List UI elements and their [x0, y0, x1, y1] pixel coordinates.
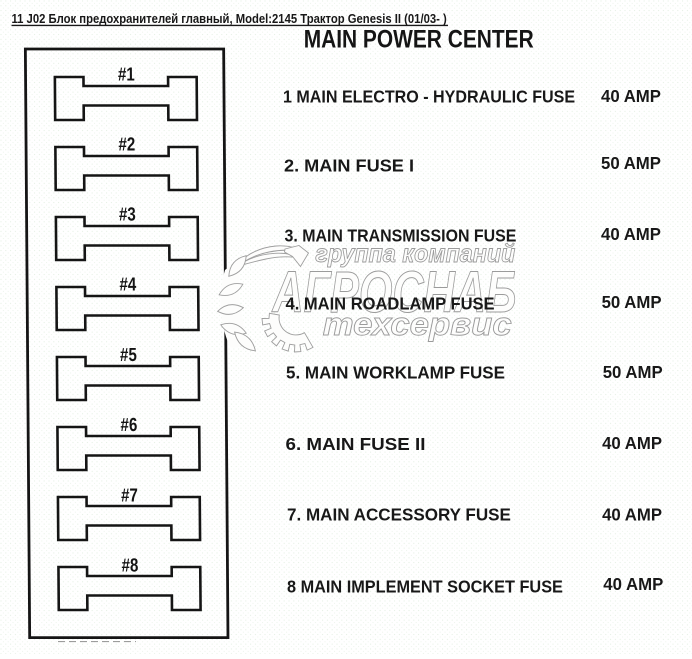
svg-text:#2: #2: [118, 133, 135, 155]
svg-text:40 AMP: 40 AMP: [603, 575, 663, 594]
svg-text:4. MAIN ROADLAMP FUSE: 4. MAIN ROADLAMP FUSE: [286, 294, 495, 313]
svg-text:40 AMP: 40 AMP: [601, 225, 661, 244]
svg-text:6. MAIN FUSE II: 6. MAIN FUSE II: [286, 435, 426, 454]
svg-text:40 AMP: 40 AMP: [602, 434, 662, 453]
svg-text:40 AMP: 40 AMP: [602, 505, 662, 524]
svg-text:2. MAIN FUSE I: 2. MAIN FUSE I: [284, 156, 414, 176]
svg-text:8 MAIN IMPLEMENT SOCKET FUSE: 8 MAIN IMPLEMENT SOCKET FUSE: [287, 577, 563, 597]
svg-text:#5: #5: [120, 343, 137, 365]
svg-text:#4: #4: [119, 273, 136, 295]
svg-text:50 AMP: 50 AMP: [603, 363, 663, 382]
svg-text:#3: #3: [119, 203, 136, 225]
svg-text:MAIN POWER CENTER: MAIN POWER CENTER: [304, 25, 534, 53]
svg-text:50 AMP: 50 AMP: [601, 154, 661, 173]
svg-text:40 AMP: 40 AMP: [601, 87, 661, 106]
svg-text:#7: #7: [121, 484, 138, 506]
svg-text:7. MAIN ACCESSORY FUSE: 7. MAIN ACCESSORY FUSE: [287, 504, 511, 524]
svg-text:3. MAIN TRANSMISSION FUSE: 3. MAIN TRANSMISSION FUSE: [285, 226, 517, 246]
svg-text:5. MAIN WORKLAMP FUSE: 5. MAIN WORKLAMP FUSE: [286, 362, 505, 382]
svg-text:50 AMP: 50 AMP: [602, 293, 662, 312]
svg-text:#8: #8: [121, 554, 138, 576]
svg-text:#6: #6: [120, 413, 137, 435]
svg-text:#1: #1: [118, 63, 135, 85]
svg-text:1 MAIN ELECTRO - HYDRAULIC F: 1 MAIN ELECTRO - HYDRAULIC FUSE: [283, 87, 575, 107]
